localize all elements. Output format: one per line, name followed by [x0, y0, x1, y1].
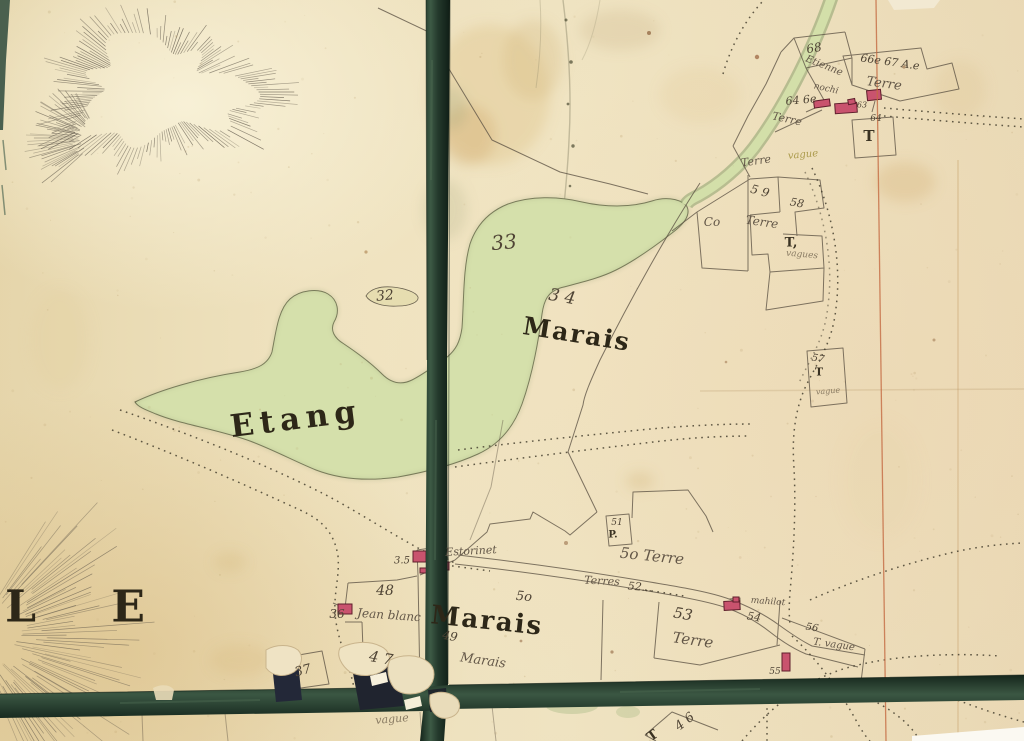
building — [848, 99, 856, 105]
cadastral-map: EtangMaraisMaraisL E33323 4374 748363.54… — [0, 0, 1024, 741]
building — [782, 653, 790, 671]
map-artwork — [0, 0, 1024, 741]
horizontal-fold-band — [0, 675, 1024, 718]
vertical-fold-band — [420, 0, 450, 741]
survey-red-line — [876, 0, 886, 741]
building — [338, 604, 352, 614]
islet-32 — [366, 287, 418, 306]
building — [413, 551, 426, 562]
building — [867, 89, 882, 100]
building — [733, 597, 739, 602]
building — [814, 99, 831, 108]
